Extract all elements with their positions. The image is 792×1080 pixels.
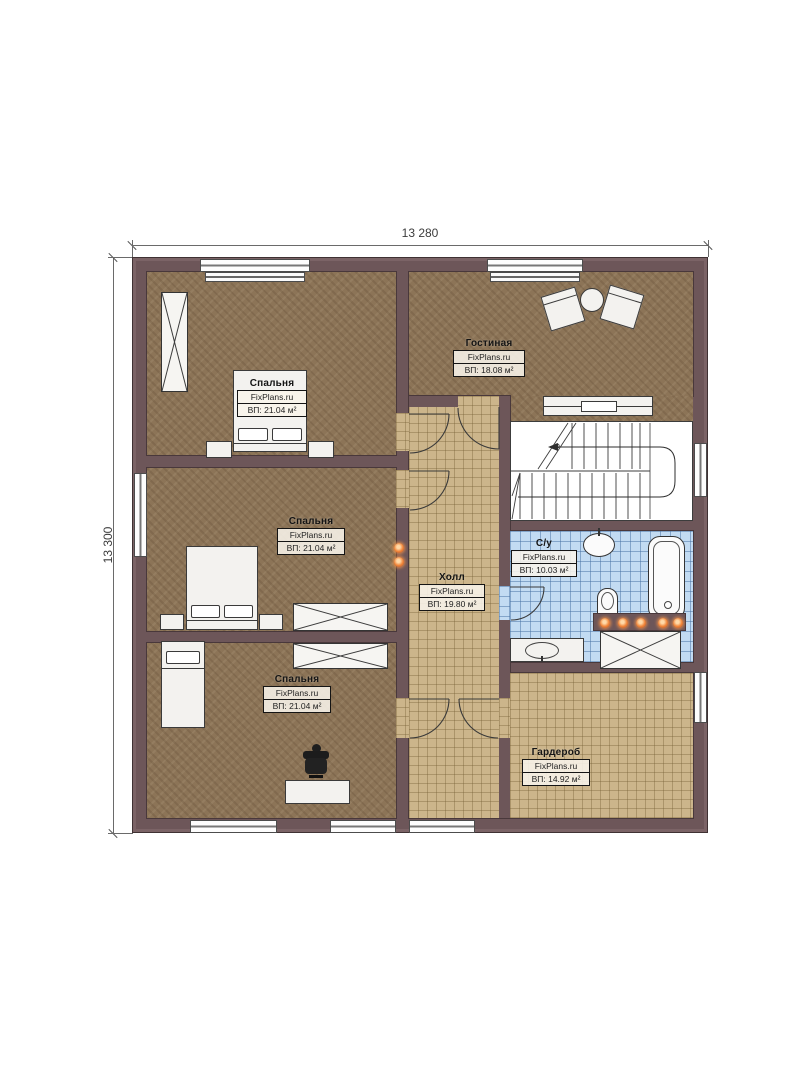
desk bbox=[285, 780, 350, 804]
room-label-bedroom1: Спальня FixPlans.ru ВП: 21.04 м² bbox=[237, 378, 307, 417]
dimension-ext bbox=[108, 257, 133, 258]
door-opening-wardrobe bbox=[499, 698, 510, 738]
brand-watermark: FixPlans.ru bbox=[278, 529, 344, 541]
window-bottom-hall bbox=[409, 820, 475, 833]
pillow bbox=[238, 428, 268, 441]
door-bathroom bbox=[510, 586, 544, 620]
wardrobe-cabinet-bedroom3 bbox=[293, 643, 388, 669]
double-bed-bedroom2 bbox=[186, 546, 258, 630]
room-name: Спальня bbox=[277, 516, 345, 527]
door-opening-bathroom bbox=[499, 586, 510, 620]
room-area: ВП: 18.08 м² bbox=[454, 363, 524, 376]
washbasin-tap bbox=[598, 528, 600, 536]
wall-hall-right-lower bbox=[499, 738, 510, 818]
brand-watermark: FixPlans.ru bbox=[454, 351, 524, 363]
room-label-living: Гостиная FixPlans.ru ВП: 18.08 м² bbox=[453, 338, 525, 377]
door-opening-bedroom1 bbox=[396, 413, 409, 451]
room-area: ВП: 21.04 м² bbox=[278, 541, 344, 554]
room-label-bedroom3: Спальня FixPlans.ru ВП: 21.04 м² bbox=[263, 674, 331, 713]
room-label-wardrobe: Гардероб FixPlans.ru ВП: 14.92 м² bbox=[522, 747, 590, 786]
room-name: Спальня bbox=[237, 378, 307, 389]
nightstand bbox=[206, 441, 232, 458]
sofa-console bbox=[543, 396, 653, 416]
dimension-width-label: 13 280 bbox=[132, 226, 708, 240]
nightstand bbox=[160, 614, 184, 630]
brand-watermark: FixPlans.ru bbox=[523, 760, 589, 772]
spotlight bbox=[658, 618, 668, 628]
window-right-wardrobe bbox=[694, 672, 707, 723]
office-chair bbox=[301, 744, 331, 778]
window-top-bedroom1 bbox=[200, 259, 310, 272]
nightstand bbox=[308, 441, 334, 458]
floor-plan-canvas: 13 280 13 300 bbox=[0, 0, 792, 1080]
room-label-hall: Холл FixPlans.ru ВП: 19.80 м² bbox=[419, 572, 485, 611]
dimension-ext bbox=[132, 240, 133, 257]
room-label-bedroom2: Спальня FixPlans.ru ВП: 21.04 м² bbox=[277, 516, 345, 555]
nightstand bbox=[259, 614, 283, 630]
wardrobe-cabinet-bedroom2 bbox=[293, 603, 388, 631]
window-bottom-bedroom3 bbox=[190, 820, 277, 833]
window-bottom-bedroom3b bbox=[330, 820, 396, 833]
wall-light bbox=[394, 543, 404, 553]
pillow bbox=[224, 605, 253, 618]
brand-watermark: FixPlans.ru bbox=[512, 551, 576, 563]
door-wardrobe bbox=[459, 698, 499, 738]
room-name: Спальня bbox=[263, 674, 331, 685]
dimension-width-line bbox=[132, 245, 708, 246]
bathtub bbox=[648, 536, 685, 620]
door-opening-bedroom2 bbox=[396, 470, 409, 508]
pillow bbox=[191, 605, 220, 618]
wardrobe-cabinet-bedroom1 bbox=[161, 292, 188, 392]
washbasin bbox=[583, 533, 615, 557]
wall-light bbox=[394, 557, 404, 567]
brand-watermark: FixPlans.ru bbox=[264, 687, 330, 699]
room-name: Гостиная bbox=[453, 338, 525, 349]
window-top-living bbox=[487, 259, 583, 272]
door-living bbox=[458, 407, 500, 449]
spotlight bbox=[600, 618, 610, 628]
brand-watermark: FixPlans.ru bbox=[420, 585, 484, 597]
room-name: С/у bbox=[511, 538, 577, 549]
pillow bbox=[272, 428, 302, 441]
room-area: ВП: 10.03 м² bbox=[512, 563, 576, 576]
staircase bbox=[510, 421, 693, 521]
room-name: Гардероб bbox=[522, 747, 590, 758]
wall-living-hall bbox=[409, 396, 458, 407]
spotlight bbox=[636, 618, 646, 628]
room-living-floor bbox=[409, 272, 693, 396]
linen-cabinet bbox=[600, 631, 681, 669]
spotlight bbox=[618, 618, 628, 628]
radiator-bedroom1 bbox=[205, 272, 305, 282]
room-area: ВП: 19.80 м² bbox=[420, 597, 484, 610]
wall-hall-right-upper bbox=[499, 396, 510, 586]
door-bedroom3 bbox=[409, 698, 449, 738]
side-table-round bbox=[580, 288, 604, 312]
room-label-bathroom: С/у FixPlans.ru ВП: 10.03 м² bbox=[511, 538, 577, 577]
room-area: ВП: 14.92 м² bbox=[523, 772, 589, 785]
window-left-bedroom2 bbox=[134, 473, 147, 557]
door-bedroom1 bbox=[409, 413, 449, 453]
window-right-stairs bbox=[694, 443, 707, 497]
pillow bbox=[166, 651, 200, 664]
dimension-ext bbox=[108, 833, 133, 834]
dimension-height-line bbox=[113, 257, 114, 833]
brand-watermark: FixPlans.ru bbox=[238, 391, 306, 403]
wall-hall-right-mid bbox=[499, 620, 510, 698]
spotlight-strip bbox=[593, 613, 686, 631]
spotlight bbox=[673, 618, 683, 628]
room-area: ВП: 21.04 м² bbox=[264, 699, 330, 712]
single-bed-bedroom3 bbox=[161, 641, 205, 728]
radiator-living bbox=[490, 272, 580, 282]
dimension-ext bbox=[708, 240, 709, 257]
room-wardrobe-floor bbox=[510, 673, 693, 818]
door-bedroom2 bbox=[409, 470, 449, 510]
door-opening-bedroom3 bbox=[396, 698, 409, 738]
room-area: ВП: 21.04 м² bbox=[238, 403, 306, 416]
vanity-counter bbox=[510, 638, 584, 662]
room-name: Холл bbox=[419, 572, 485, 583]
